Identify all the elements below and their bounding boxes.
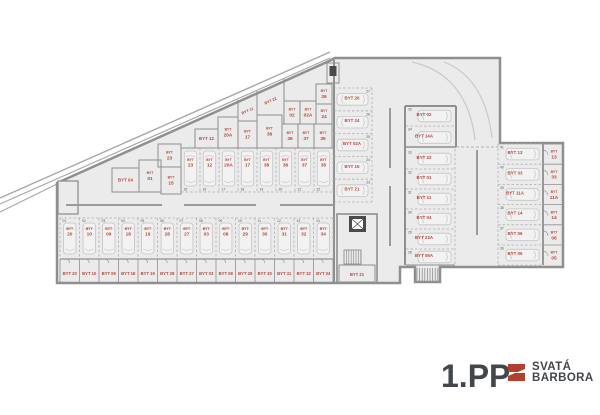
unit-number: 14 <box>551 215 557 221</box>
unit-text: BYT 22 <box>417 155 432 160</box>
parking-stall: 11BYT30 <box>258 219 271 254</box>
unit-prefix: BYT <box>303 131 311 135</box>
car-icon <box>203 151 215 186</box>
unit-prefix: BYT <box>320 227 328 231</box>
unit-label: BYT 04 <box>118 178 133 183</box>
lane-marking <box>389 108 391 168</box>
unit-text: BYT 26 <box>345 95 360 100</box>
parking-stall: 01BYT20 <box>63 219 76 254</box>
unit-number: 20A <box>224 132 233 138</box>
unit-number: 33 <box>551 175 557 181</box>
unit-text: BYT 06 <box>508 231 523 236</box>
stall-number: 36 <box>500 247 504 251</box>
unit-text: BYT 28 <box>160 271 175 276</box>
car-icon <box>184 151 196 186</box>
unit-label: BYT 05A <box>415 253 434 258</box>
unit-text: BYT 09 <box>102 271 117 276</box>
unit-text: BYT 33 <box>508 170 523 175</box>
unit-text: BYT 04 <box>118 178 133 183</box>
unit-prefix: BYT <box>305 108 313 112</box>
unit-prefix: BYT <box>551 170 559 174</box>
core: BYT 21 <box>337 214 377 283</box>
unit-text: BYT 21 <box>350 272 365 277</box>
unit-number: 20 <box>67 231 73 237</box>
stall-number: 18 <box>241 188 245 192</box>
unit-text: BYT 19 <box>141 271 156 276</box>
unit-number: 24 <box>321 114 327 120</box>
unit-number: 23 <box>188 162 194 168</box>
unit-number: 38 <box>264 162 270 168</box>
car-icon <box>241 151 253 186</box>
unit-prefix: BYT <box>551 231 559 235</box>
unit-number: 36 <box>283 162 289 168</box>
unit-prefix: BYT <box>206 158 214 162</box>
parking-stall: 05BYT19 <box>141 219 154 254</box>
unit-prefix: BYT <box>300 227 308 231</box>
stall-number: 40 <box>500 166 504 170</box>
unit-number: 03 <box>204 231 210 237</box>
unit-number: 06 <box>551 235 557 241</box>
lane-marking <box>476 150 478 235</box>
stall-number: 37 <box>500 226 504 230</box>
unit-label: BYT 05 <box>508 251 523 256</box>
stall-number: 23 <box>366 181 370 185</box>
stall-number: 10 <box>238 219 242 223</box>
unit-text: BYT 05 <box>508 251 523 256</box>
lane-marking <box>389 186 391 246</box>
lane-marking <box>66 204 162 206</box>
unit-text: BYT 02A <box>343 141 362 146</box>
unit-prefix: BYT <box>551 190 559 194</box>
unit-number: 02 <box>289 112 295 118</box>
parking-stall: 06BYT28 <box>160 219 173 254</box>
unit-number: 19 <box>145 231 151 237</box>
unit-prefix: BYT <box>263 158 271 162</box>
unit-prefix: BYT <box>242 227 250 231</box>
site-wall-diagonal <box>0 184 57 212</box>
unit-prefix: BYT <box>320 131 328 135</box>
unit-text: BYT 12 <box>199 136 214 141</box>
unit-prefix: BYT <box>551 150 559 154</box>
unit-number: 35 <box>321 162 327 168</box>
unit-number: 15 <box>168 180 174 186</box>
stall-number: 26 <box>366 112 370 116</box>
parking-stall: 17BYT20A <box>222 151 235 192</box>
unit-label: BYT 02A <box>343 141 362 146</box>
unit-label: BYT 04 <box>417 215 432 220</box>
unit-prefix: BYT <box>187 158 195 162</box>
unit-text: BYT 34 <box>316 271 331 276</box>
stall-number: 41 <box>500 146 504 150</box>
unit-number: 23 <box>167 155 173 161</box>
unit-label: BYT 01 <box>417 175 432 180</box>
unit-label: BYT 23A <box>415 235 434 240</box>
stall-number: 13 <box>297 219 301 223</box>
unit-prefix: BYT <box>105 227 113 231</box>
brand-logo: SVATÁ BARBORA <box>505 361 594 384</box>
unit-prefix: BYT <box>282 158 290 162</box>
stall-number: 30 <box>408 211 412 215</box>
unit-prefix: BYT <box>320 158 328 162</box>
unit-text: BYT 27 <box>180 271 195 276</box>
unit-label: BYT 13 <box>508 150 523 155</box>
parking-stall: 20BYT36 <box>279 151 292 192</box>
unit-prefix: BYT <box>225 158 233 162</box>
unit-label: BYT 11 <box>417 195 432 200</box>
unit-prefix: BYT <box>551 210 559 214</box>
unit-text: BYT 08 <box>219 271 234 276</box>
stall-number: 14 <box>316 219 320 223</box>
parking-stall: 21BYT37 <box>298 151 311 192</box>
parking-stall: 04BYT18 <box>121 219 134 254</box>
stall-number: 06 <box>160 219 164 223</box>
unit-number: 29 <box>243 231 249 237</box>
unit-text: BYT 24 <box>345 118 360 123</box>
parking-stall: 15BYT23 <box>184 151 197 192</box>
stall-number: 11 <box>258 219 262 223</box>
elevator <box>349 216 366 232</box>
unit-prefix: BYT <box>203 227 211 231</box>
unit-number: 17 <box>245 162 251 168</box>
stall-number: 25 <box>366 135 370 139</box>
unit-number: 37 <box>302 162 308 168</box>
stall-number: 04 <box>121 219 125 223</box>
unit-prefix: BYT <box>225 128 233 132</box>
unit-number: 17 <box>245 134 251 140</box>
unit-text: BYT 03 <box>199 271 214 276</box>
parking-stall: 07BYT27 <box>180 219 193 254</box>
unit-text: BYT 21 <box>345 187 360 192</box>
unit-prefix: BYT <box>86 227 94 231</box>
unit-text: BYT 05A <box>415 253 434 258</box>
unit-text: BYT 31 <box>277 271 292 276</box>
unit-text: BYT 10 <box>82 271 97 276</box>
stall-number: 32 <box>408 171 412 175</box>
car-icon <box>298 151 310 186</box>
unit-text: BYT 01 <box>417 175 432 180</box>
unit-text: BYT 20 <box>63 271 78 276</box>
unit-text: BYT 11A <box>506 191 525 196</box>
unit-text: BYT 14 <box>508 211 523 216</box>
unit-number: 02A <box>304 112 313 118</box>
stall-number: 31 <box>408 191 412 195</box>
parking-stall: 02BYT10 <box>82 219 95 254</box>
unit-text: BYT 14A <box>415 134 434 139</box>
unit-text: BYT 30 <box>258 271 273 276</box>
unit-label: BYT 14 <box>508 211 523 216</box>
room <box>58 181 78 214</box>
floor-plan: 01BYT2002BYT1003BYT0904BYT1805BYT1906BYT… <box>0 0 600 415</box>
unit-number: 11A <box>550 195 559 201</box>
lane-marking <box>280 204 334 206</box>
stall-number: 15 <box>184 188 188 192</box>
unit-prefix: BYT <box>551 251 559 255</box>
unit-number: 18 <box>126 231 132 237</box>
unit-text: BYT 15 <box>345 164 360 169</box>
unit-text: BYT 13 <box>508 150 523 155</box>
unit-label: BYT 02 <box>417 112 432 117</box>
unit-label: BYT 24 <box>345 118 360 123</box>
parking-stall: 12BYT31 <box>277 219 290 254</box>
parking-stall: 16BYT12 <box>203 151 216 192</box>
unit-number: 32 <box>301 231 307 237</box>
stall-number: 20 <box>279 188 283 192</box>
unit-prefix: BYT <box>168 176 176 180</box>
brand-icon <box>505 361 527 384</box>
unit-number: 10 <box>87 231 93 237</box>
unit-prefix: BYT <box>244 130 252 134</box>
stall-number: 03 <box>102 219 106 223</box>
unit-number: 37 <box>303 136 309 142</box>
stall-number: 34 <box>408 128 412 132</box>
unit-prefix: BYT <box>261 227 269 231</box>
unit-number: 05 <box>551 256 557 262</box>
unit-number: 20A <box>224 162 233 168</box>
parking-stall: 22BYT35 <box>317 151 330 192</box>
car-icon <box>279 151 291 186</box>
middle-parking-column: 27BYT 2626BYT 2425BYT 02A24BYT 1523BYT 2… <box>334 88 372 202</box>
unit-prefix: BYT <box>144 227 152 231</box>
unit-prefix: BYT <box>66 227 74 231</box>
stall-number: 38 <box>500 206 504 210</box>
unit-number: 13 <box>551 155 557 161</box>
unit-label: BYT 26 <box>345 95 360 100</box>
parking-stall: 08BYT03 <box>199 219 212 254</box>
stall-number: 22 <box>317 188 321 192</box>
parking-stall: 18BYT17 <box>241 151 254 192</box>
stall-number: 19 <box>260 188 264 192</box>
stall-number: 24 <box>366 158 370 162</box>
unit-number: 31 <box>282 231 288 237</box>
unit-number: 36 <box>287 136 293 142</box>
unit-number: 28 <box>165 231 171 237</box>
stall-number: 27 <box>366 90 370 94</box>
stall-number: 21 <box>298 188 302 192</box>
unit-prefix: BYT <box>321 109 329 113</box>
unit-label: BYT 12 <box>199 136 214 141</box>
unit-label: BYT 11A <box>506 191 525 196</box>
stall-number: 07 <box>180 219 184 223</box>
stall-number: 09 <box>219 219 223 223</box>
unit-prefix: BYT <box>244 158 252 162</box>
car-icon <box>317 151 329 186</box>
unit-text: BYT 32 <box>297 271 312 276</box>
unit-label: BYT 33 <box>508 170 523 175</box>
parking-stall: 14BYT34 <box>316 219 329 254</box>
unit-prefix: BYT <box>222 227 230 231</box>
car-icon <box>260 151 272 186</box>
stall-number: 35 <box>408 108 412 112</box>
unit-text: BYT 23A <box>415 235 434 240</box>
stall-number: 39 <box>500 186 504 190</box>
unit-text: BYT 18 <box>121 271 136 276</box>
unit-prefix: BYT <box>321 89 329 93</box>
parking-stall: 03BYT09 <box>102 219 115 254</box>
unit-text: BYT 02 <box>417 112 432 117</box>
stall-number: 02 <box>82 219 86 223</box>
unit-label: BYT 22 <box>417 155 432 160</box>
stall-number: 12 <box>277 219 281 223</box>
unit-number: 12 <box>207 162 213 168</box>
unit-prefix: BYT <box>287 131 295 135</box>
parking-stall: 19BYT38 <box>260 151 273 192</box>
unit-number: 09 <box>106 231 112 237</box>
unit-prefix: BYT <box>125 227 133 231</box>
unit-text: BYT 04 <box>417 215 432 220</box>
unit-prefix: BYT <box>281 227 289 231</box>
unit-number: 38 <box>267 131 273 137</box>
unit-prefix: BYT <box>164 227 172 231</box>
unit-label: BYT 15 <box>345 164 360 169</box>
stall-number: 08 <box>199 219 203 223</box>
unit-prefix: BYT <box>289 108 297 112</box>
lane-marking <box>184 204 256 206</box>
unit-label: BYT 14A <box>415 134 434 139</box>
stall-number: 28 <box>408 251 412 255</box>
stall-number: 17 <box>222 188 226 192</box>
unit-text: BYT 29 <box>238 271 253 276</box>
unit-number: 30 <box>262 231 268 237</box>
unit-prefix: BYT <box>266 127 274 131</box>
brand-line2: BARBORA <box>532 373 594 384</box>
unit-prefix: BYT <box>301 158 309 162</box>
unit-text: BYT 11 <box>417 195 432 200</box>
unit-prefix: BYT <box>147 171 155 175</box>
car-icon <box>222 151 234 186</box>
unit-number: 34 <box>321 231 327 237</box>
unit-number: 01 <box>147 176 153 182</box>
stall-number: 33 <box>408 151 412 155</box>
unit-prefix: BYT <box>183 227 191 231</box>
unit-label: BYT 06 <box>508 231 523 236</box>
parking-stall: 10BYT29 <box>238 219 251 254</box>
stall-number: 16 <box>203 188 207 192</box>
parking-stall: 13BYT32 <box>297 219 310 254</box>
stall-number: 01 <box>63 219 67 223</box>
unit-prefix: BYT <box>166 151 174 155</box>
unit-number: 08 <box>223 231 229 237</box>
stall-number: 05 <box>141 219 145 223</box>
unit-number: 26 <box>321 94 327 100</box>
unit-number: 27 <box>184 231 190 237</box>
unit-number: 35 <box>320 136 326 142</box>
parking-stall: 09BYT08 <box>219 219 232 254</box>
unit-label: BYT 21 <box>345 187 360 192</box>
stall-number: 29 <box>408 231 412 235</box>
floor-label: 1.PP <box>441 358 510 395</box>
